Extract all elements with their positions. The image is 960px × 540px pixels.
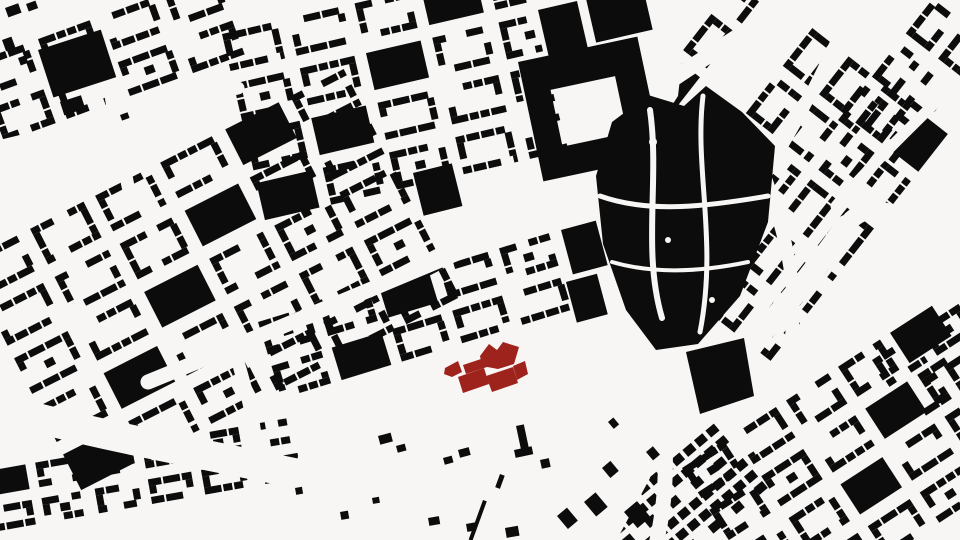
courtyard-dot bbox=[649, 138, 657, 146]
figure-ground-map bbox=[0, 0, 960, 540]
courtyard-dot bbox=[665, 237, 671, 243]
small-building bbox=[540, 458, 551, 469]
small-building bbox=[295, 487, 303, 495]
small-building bbox=[466, 522, 476, 531]
small-building bbox=[340, 511, 349, 520]
courtyard-dot bbox=[709, 297, 715, 303]
figure-ground-map-stage bbox=[0, 0, 960, 540]
small-building bbox=[372, 497, 380, 504]
